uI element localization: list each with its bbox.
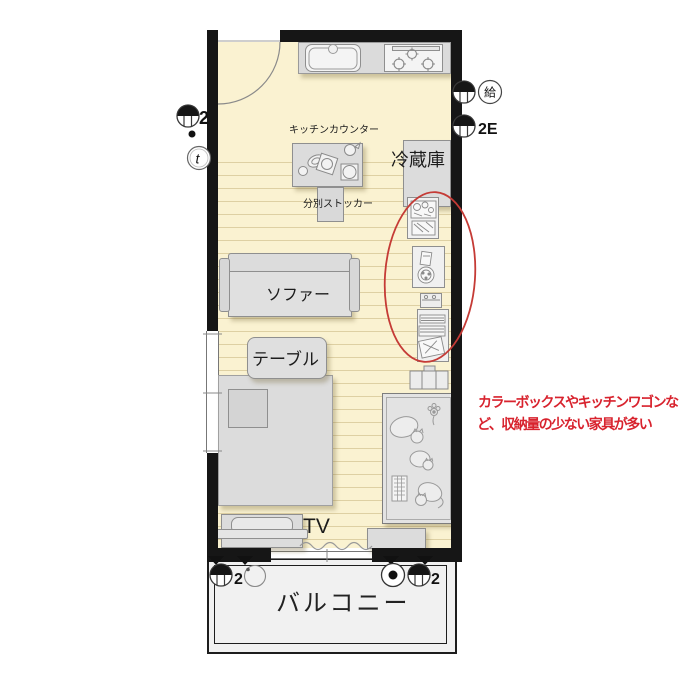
wall-right [451, 30, 462, 562]
sofa-back [228, 253, 352, 273]
bed-inner-frame [386, 397, 451, 520]
wall-top [280, 30, 462, 42]
wall-left-upper [207, 30, 218, 331]
sink-unit [305, 44, 361, 72]
sofa-arm-right [349, 258, 360, 312]
storage-box-4 [417, 309, 449, 362]
fridge-label: 冷蔵庫 [391, 151, 445, 169]
floor-plan: 冷蔵庫 キッチンカウンター 分別ストッカー ソファー テーブル TV バルコニー… [0, 0, 680, 680]
symbol-left-dot [189, 131, 196, 138]
balcony-label: バルコニー [276, 592, 411, 616]
storage-box-1 [407, 197, 439, 239]
symbol-supply-label: 給 [484, 86, 496, 100]
stove-grill [392, 46, 440, 51]
symbol-supply-circle [479, 81, 502, 104]
balcony-window [271, 551, 372, 559]
tv-screen-bar [216, 529, 308, 539]
annotation-line-1: カラーボックスやキッチンワゴンな [478, 392, 678, 412]
symbol-left-light [177, 105, 199, 127]
annotation-line-2: ど、収納量の少ない家具が多い [477, 414, 651, 434]
kitchen-counter-label: キッチンカウンター [289, 126, 379, 136]
tv-label: TV [303, 516, 330, 537]
pillow [228, 389, 268, 428]
kitchen-counter-island [292, 143, 363, 187]
symbol-t-label: t [196, 151, 201, 167]
wall-bottom-right [372, 548, 462, 562]
stocker-label: 分別ストッカー [303, 200, 373, 210]
sofa-label: ソファー [266, 288, 330, 304]
table-label: テーブル [252, 351, 319, 368]
storage-box-3 [420, 293, 442, 308]
symbol-2e-label: 2E [478, 121, 498, 138]
wall-bottom-left [207, 548, 271, 562]
wall-left-lower [207, 453, 218, 562]
sofa-arm-left [219, 258, 230, 312]
bench [367, 528, 426, 549]
storage-box-2 [412, 246, 445, 288]
